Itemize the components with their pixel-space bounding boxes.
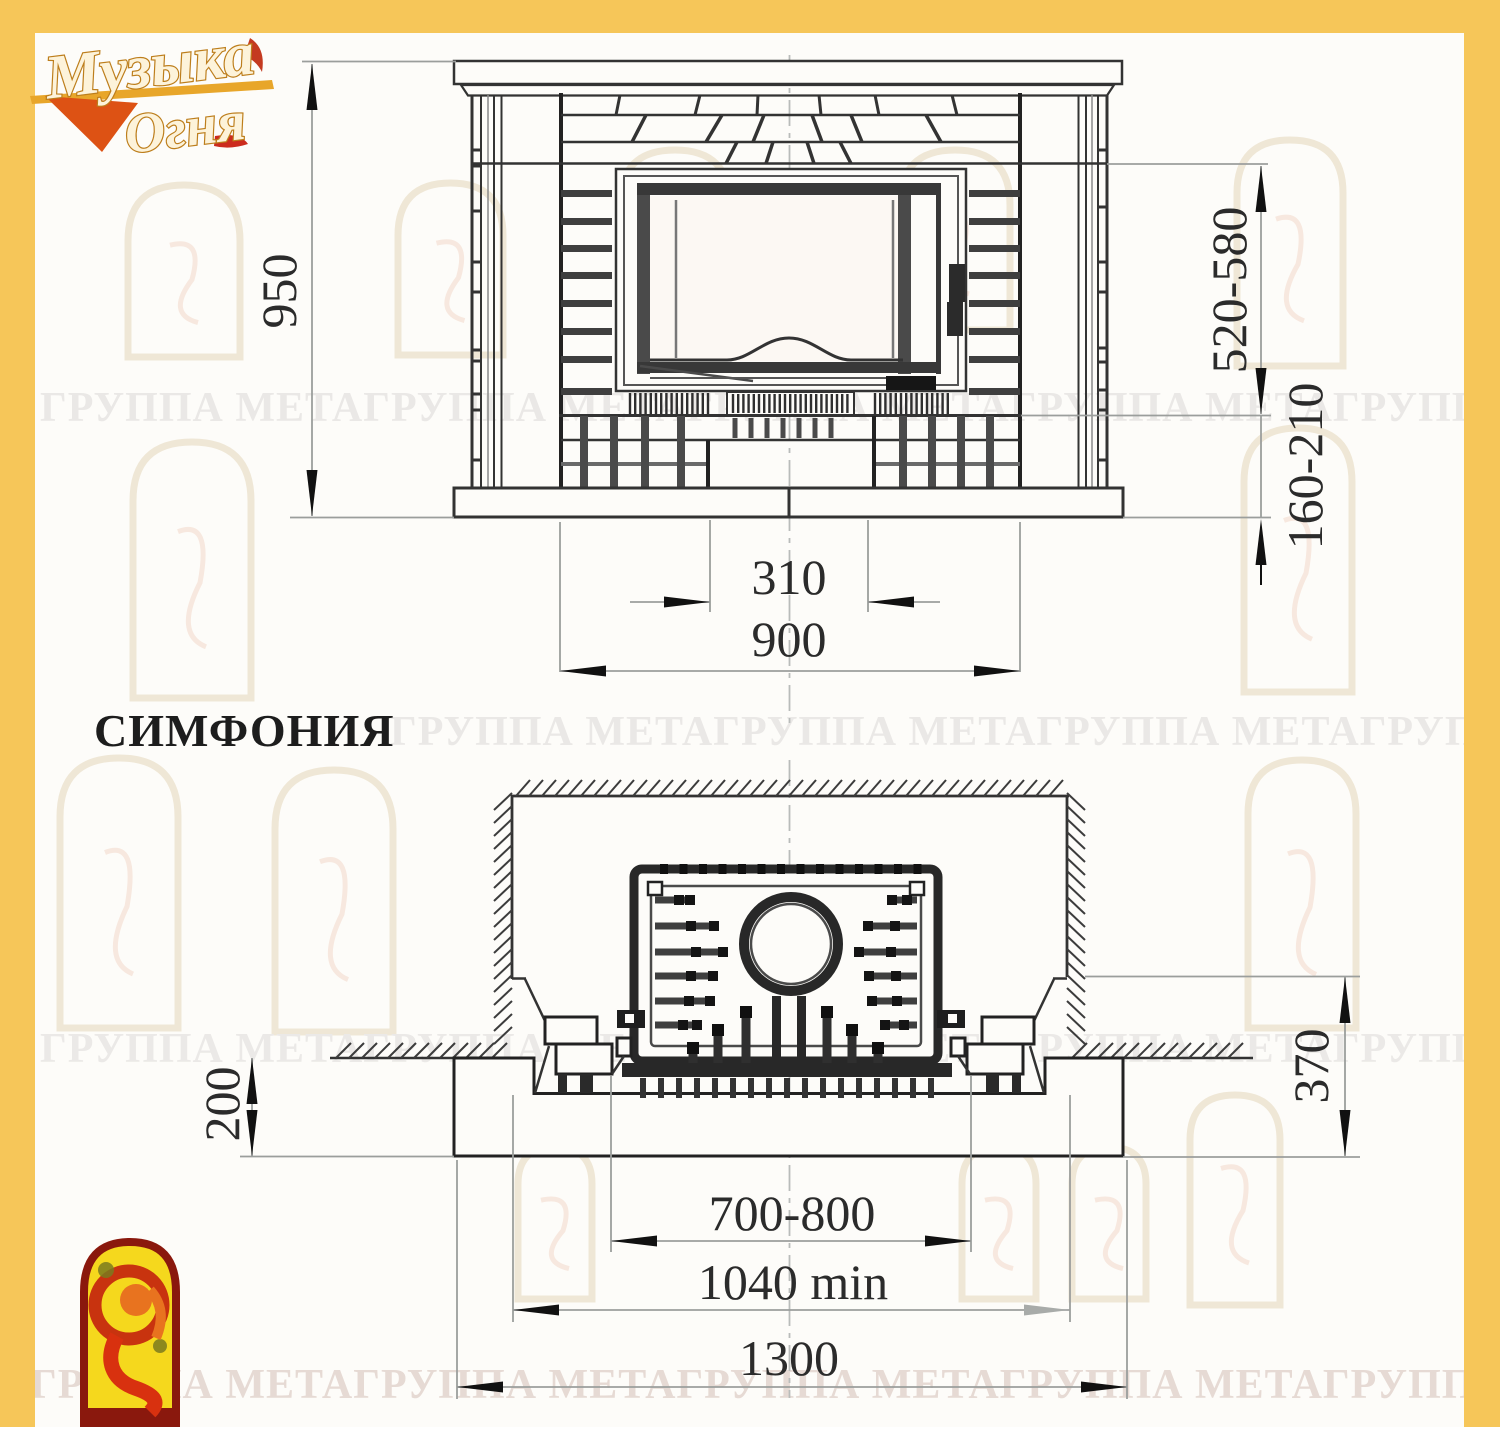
svg-text:200: 200 bbox=[194, 1067, 250, 1142]
svg-text:520-580: 520-580 bbox=[1201, 207, 1257, 374]
svg-text:900: 900 bbox=[752, 611, 827, 667]
svg-text:1040 min: 1040 min bbox=[698, 1254, 888, 1310]
svg-text:1300: 1300 bbox=[739, 1330, 839, 1386]
svg-text:310: 310 bbox=[752, 549, 827, 605]
svg-text:370: 370 bbox=[1283, 1029, 1339, 1104]
svg-text:СИМФОНИЯ: СИМФОНИЯ bbox=[94, 705, 394, 756]
svg-text:160-210: 160-210 bbox=[1277, 383, 1333, 550]
svg-text:700-800: 700-800 bbox=[709, 1185, 876, 1241]
svg-text:950: 950 bbox=[251, 254, 307, 329]
svg-text:ГРУППА МЕТАГРУППА МЕТАГРУППА М: ГРУППА МЕТАГРУППА МЕТАГРУППА МЕТАГРУППА … bbox=[390, 709, 1500, 755]
